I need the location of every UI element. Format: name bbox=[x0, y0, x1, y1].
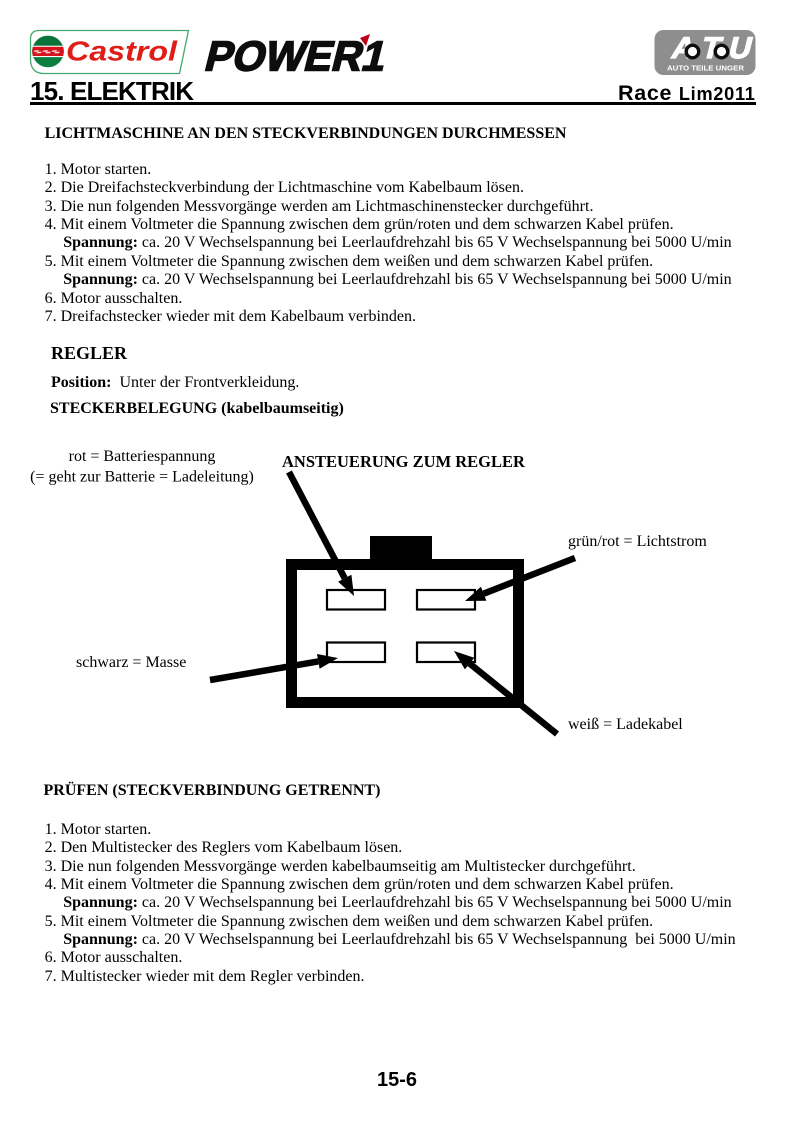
svg-text:AUTO TEILE UNGER: AUTO TEILE UNGER bbox=[667, 64, 745, 73]
svg-text:weiß = Ladekabel: weiß = Ladekabel bbox=[568, 716, 683, 733]
svg-text:grün/rot = Lichtstrom: grün/rot = Lichtstrom bbox=[568, 533, 707, 550]
svg-text:schwarz = Masse: schwarz = Masse bbox=[76, 654, 186, 671]
svg-text:rot = Batteriespannung: rot = Batteriespannung bbox=[69, 448, 216, 465]
svg-text:ANSTEUERUNG ZUM REGLER: ANSTEUERUNG ZUM REGLER bbox=[282, 452, 526, 471]
svg-text:(= geht zur Batterie = Ladelei: (= geht zur Batterie = Ladeleitung) bbox=[30, 469, 254, 486]
svg-text:A T U: A T U bbox=[669, 31, 756, 64]
svg-text:Castrol: Castrol bbox=[66, 36, 178, 67]
